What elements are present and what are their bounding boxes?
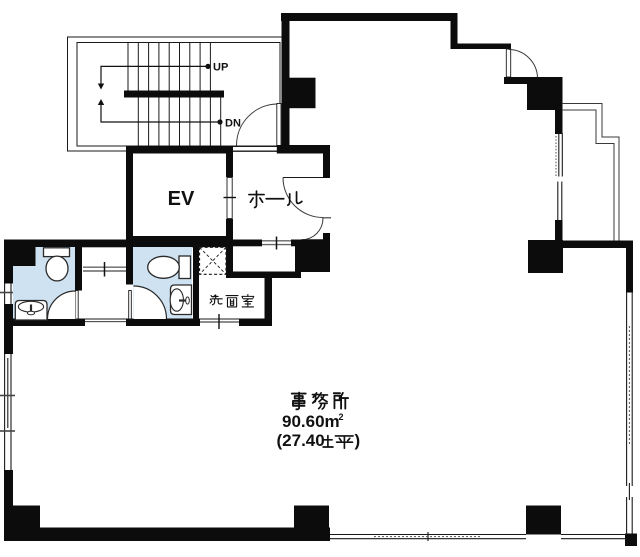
svg-text:2: 2 [339, 412, 344, 422]
svg-text:90.60m: 90.60m [282, 412, 340, 431]
svg-text:EV: EV [168, 188, 195, 210]
svg-text:): ) [355, 431, 361, 450]
svg-text:(27.40: (27.40 [277, 431, 325, 450]
svg-text:UP: UP [213, 62, 228, 74]
svg-text:DN: DN [225, 118, 241, 130]
